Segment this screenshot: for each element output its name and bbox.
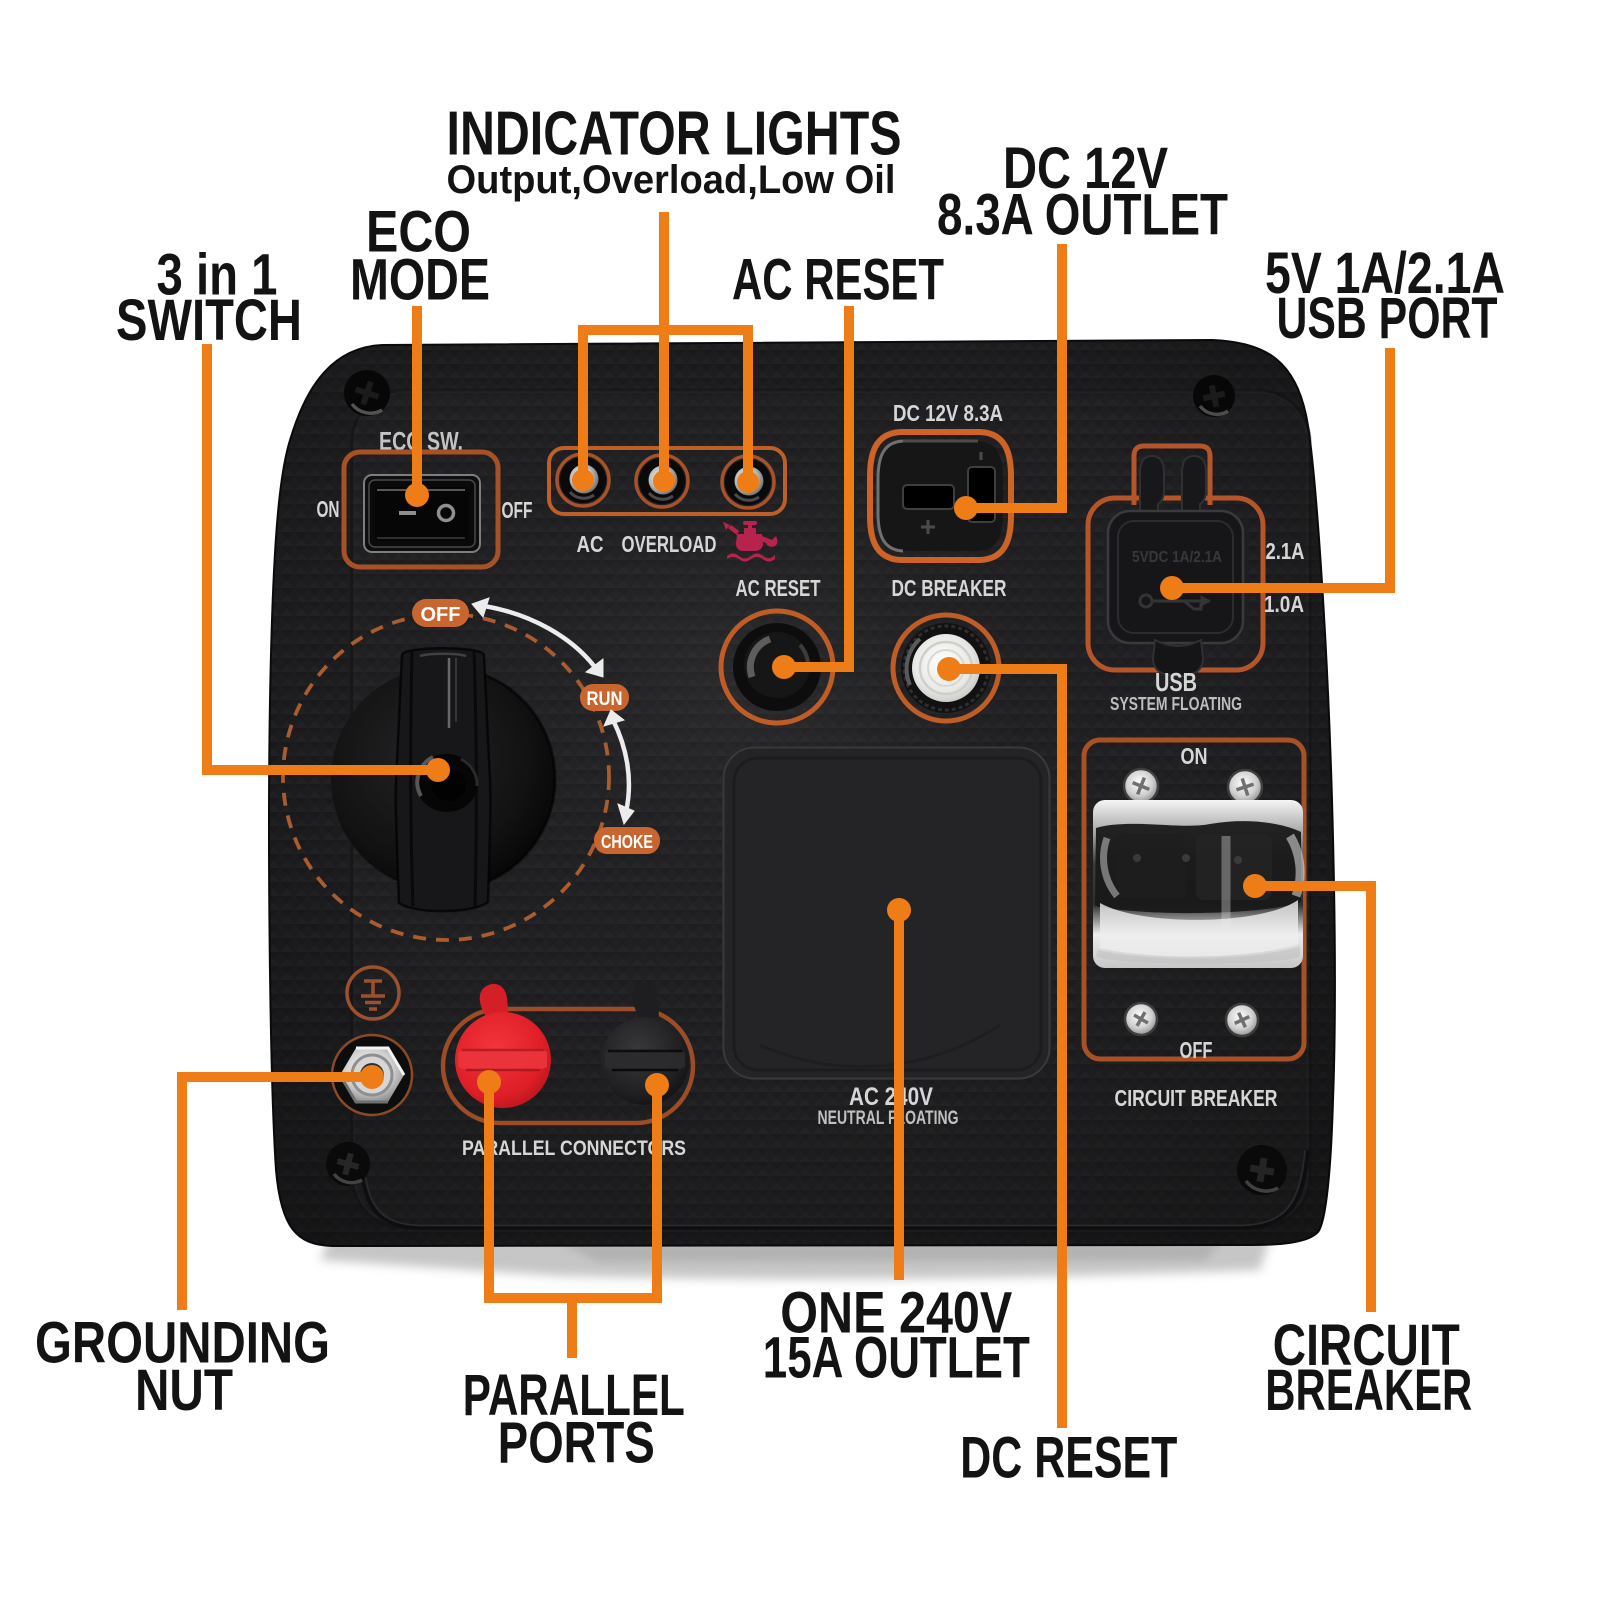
svg-text:OFF: OFF (1180, 1037, 1213, 1063)
svg-text:1.0A: 1.0A (1264, 591, 1304, 617)
svg-text:OFF: OFF (421, 604, 461, 626)
svg-text:15A OUTLET: 15A OUTLET (763, 1326, 1030, 1391)
svg-text:CHOKE: CHOKE (601, 832, 653, 852)
svg-text:DC RESET: DC RESET (960, 1426, 1177, 1491)
svg-text:AC: AC (577, 531, 604, 557)
svg-text:8.3A OUTLET: 8.3A OUTLET (937, 183, 1228, 248)
svg-text:NEUTRAL FLOATING: NEUTRAL FLOATING (818, 1108, 959, 1129)
svg-text:OVERLOAD: OVERLOAD (622, 531, 717, 557)
svg-text:BREAKER: BREAKER (1265, 1358, 1472, 1423)
svg-text:CIRCUIT BREAKER: CIRCUIT BREAKER (1115, 1085, 1278, 1111)
svg-text:OFF: OFF (502, 497, 533, 523)
svg-text:Output,Overload,Low Oil: Output,Overload,Low Oil (447, 158, 896, 202)
svg-text:USB PORT: USB PORT (1277, 286, 1498, 351)
svg-text:USB: USB (1155, 667, 1197, 697)
svg-text:MODE: MODE (350, 248, 490, 313)
svg-text:DC 12V 8.3A: DC 12V 8.3A (893, 400, 1003, 426)
svg-text:NUT: NUT (135, 1358, 233, 1423)
svg-text:ON: ON (1181, 743, 1208, 769)
svg-text:2.1A: 2.1A (1266, 538, 1305, 564)
svg-text:SYSTEM FLOATING: SYSTEM FLOATING (1110, 694, 1242, 714)
svg-text:5VDC 1A/2.1A: 5VDC 1A/2.1A (1132, 549, 1222, 566)
svg-text:AC RESET: AC RESET (732, 248, 944, 313)
svg-text:DC BREAKER: DC BREAKER (892, 575, 1007, 601)
svg-text:AC 240V: AC 240V (849, 1083, 933, 1111)
svg-text:AC RESET: AC RESET (736, 575, 821, 601)
svg-text:RUN: RUN (587, 689, 623, 710)
svg-text:SWITCH: SWITCH (116, 288, 302, 353)
svg-text:ON: ON (317, 496, 340, 522)
svg-text:PORTS: PORTS (498, 1411, 655, 1476)
